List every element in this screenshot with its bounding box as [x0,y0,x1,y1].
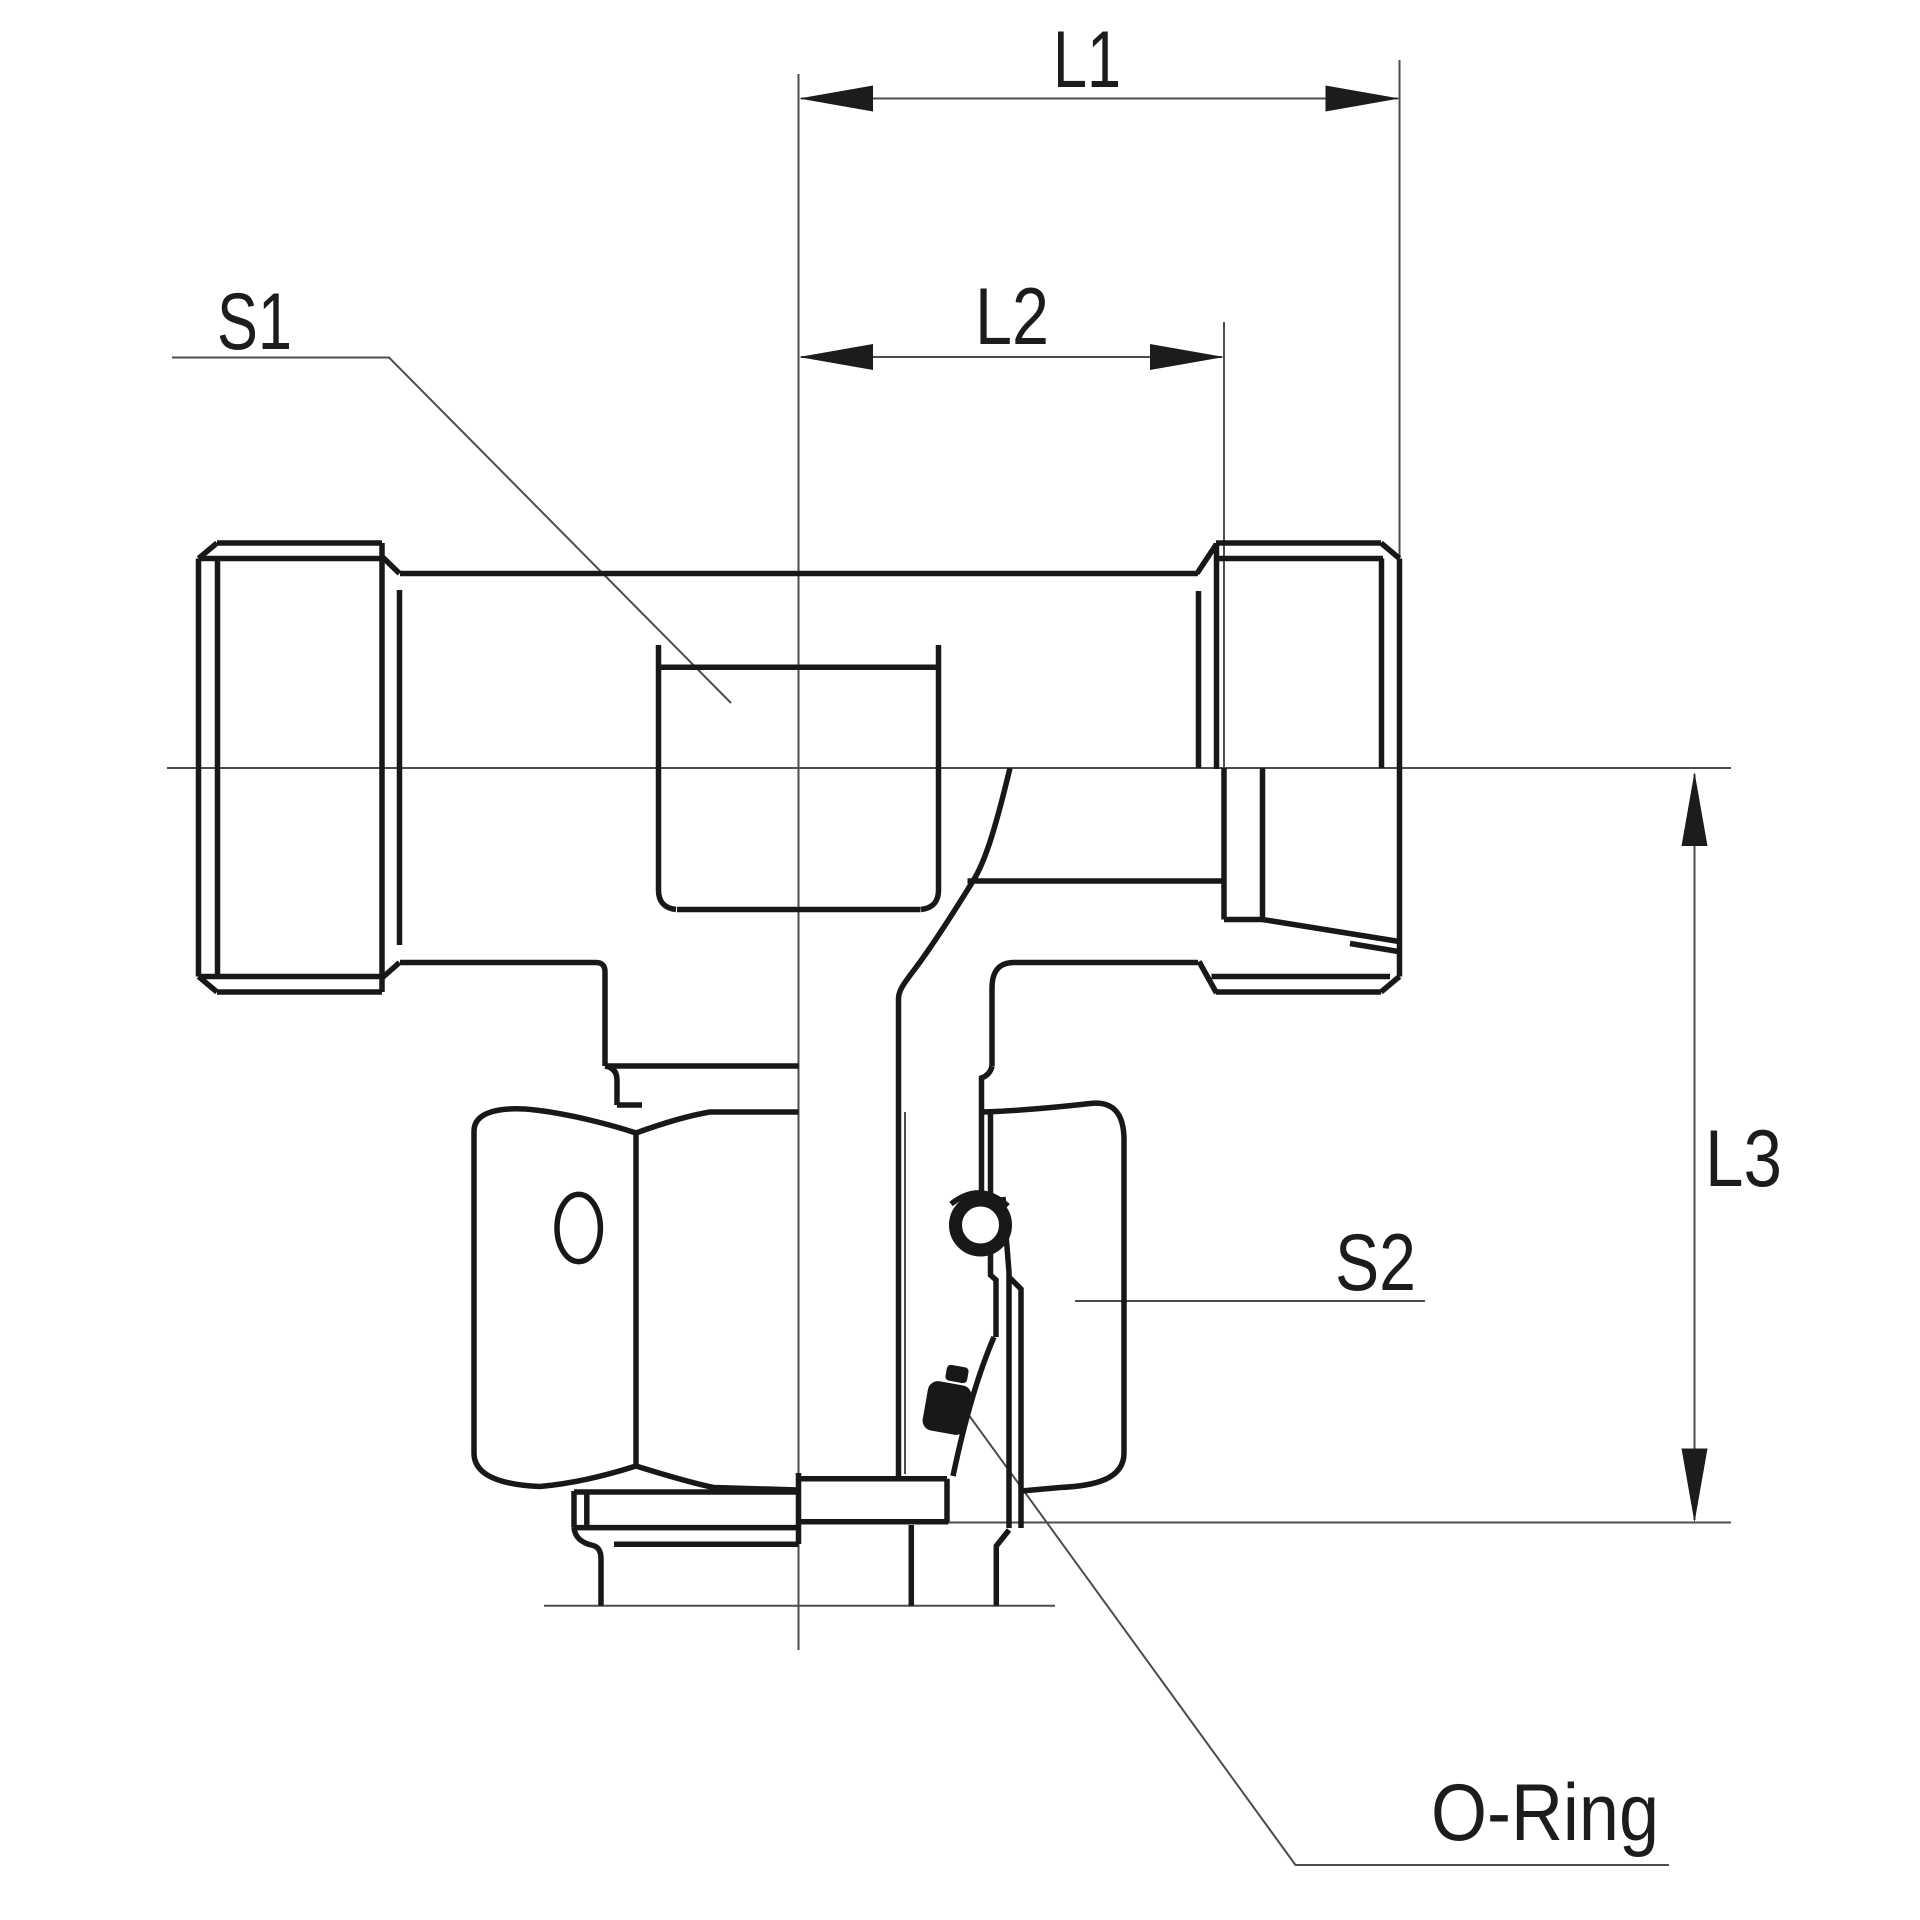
svg-text:O-Ring: O-Ring [1431,1768,1659,1858]
svg-text:L3: L3 [1705,1114,1782,1204]
svg-text:S1: S1 [217,277,292,367]
svg-text:L1: L1 [1053,15,1121,105]
svg-text:L2: L2 [975,272,1049,362]
svg-text:S2: S2 [1335,1218,1416,1308]
